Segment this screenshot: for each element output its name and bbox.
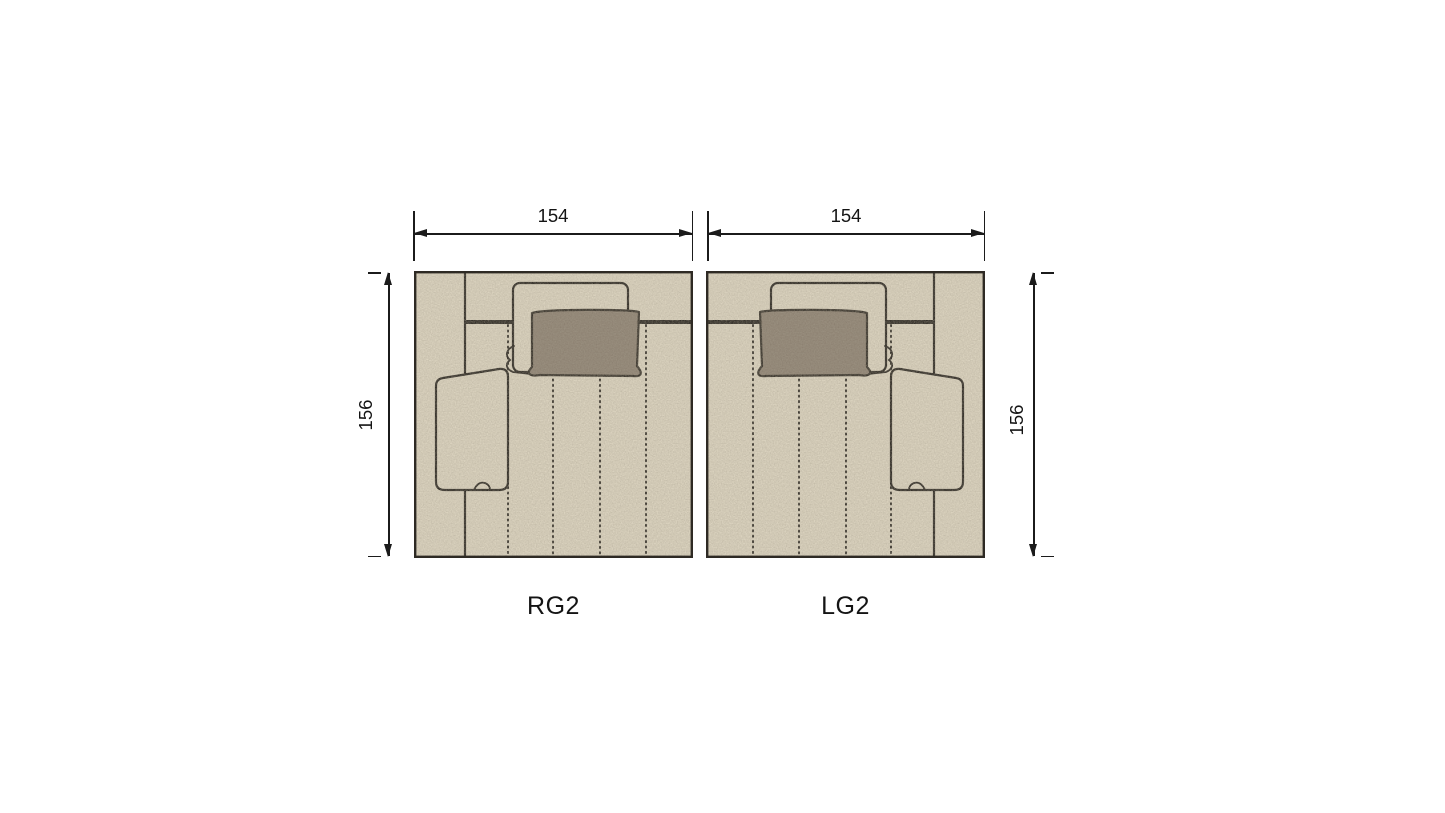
extension-tick [1041,272,1054,274]
dimension-line [414,233,692,235]
width-value-lg2: 154 [707,206,985,226]
sofa-module-lg2 [706,271,985,558]
technical-drawing-canvas: 154 154 156 156 [0,0,1445,813]
arrowhead-right [971,229,984,237]
dimension-line [388,273,390,556]
extension-tick [368,556,381,558]
extension-tick [368,272,381,274]
arrowhead-left [414,229,427,237]
width-dimension-rg2: 154 [413,211,693,261]
arrowhead-up [1029,272,1037,285]
extension-tick [1041,556,1054,558]
height-dimension-lg2: 156 [1000,271,1060,558]
arrowhead-up [384,272,392,285]
width-dimension-lg2: 154 [707,211,985,261]
dimension-line [1033,273,1035,556]
module-label-rg2: RG2 [414,592,693,621]
height-value-lg2: 156 [1006,405,1028,436]
width-value-rg2: 154 [413,206,693,226]
sofa-module-rg2 [414,271,693,558]
arrowhead-right [679,229,692,237]
height-value-rg2: 156 [355,400,377,431]
sofa-module-rg2-drawing [414,271,693,558]
module-label-lg2: LG2 [706,592,985,621]
sofa-module-lg2-drawing [706,271,985,558]
arrowhead-down [384,544,392,557]
dimension-line [708,233,984,235]
height-dimension-rg2: 156 [352,271,396,558]
arrowhead-left [708,229,721,237]
arrowhead-down [1029,544,1037,557]
